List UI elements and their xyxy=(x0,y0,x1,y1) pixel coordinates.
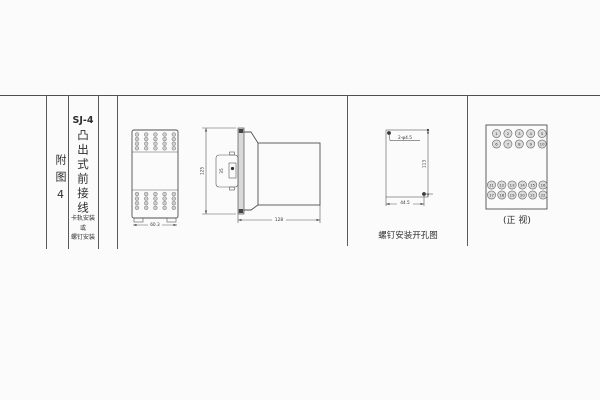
side-view-height-dim-text: 125 xyxy=(200,167,206,175)
mounting-note-line3: 螺钉安装 xyxy=(68,233,98,243)
terminal-dot xyxy=(172,137,176,141)
mounting-note-line2: 或 xyxy=(68,224,98,234)
side-view-bottom-terminal xyxy=(239,209,243,213)
terminal-number: 10 xyxy=(540,141,545,146)
terminal-dot xyxy=(163,142,167,146)
terminal-dot xyxy=(144,133,148,137)
terminal-panel-top-group: 12345678910 xyxy=(492,129,546,148)
terminal-number: 22 xyxy=(541,192,546,197)
terminal-dot xyxy=(154,206,158,210)
terminal-dot xyxy=(163,206,167,210)
drill-template-caption: 螺钉安装开孔图 xyxy=(364,229,452,241)
terminal-dot xyxy=(144,192,148,196)
front-view-width-dim-text: 60.3 xyxy=(150,222,160,228)
terminal-dot xyxy=(154,201,158,205)
terminal-panel-drawing: 12345678910 111213141516171819202122 xyxy=(482,120,552,212)
terminal-number: 16 xyxy=(541,182,546,187)
terminal-dot xyxy=(154,192,158,196)
terminal-dot xyxy=(135,137,139,141)
drill-horizontal-dim-text: 44.5 xyxy=(400,200,410,206)
drill-template-drawing: 2-φ4.5 113 44.5 xyxy=(376,124,444,212)
terminal-number: 17 xyxy=(489,192,494,197)
terminal-number: 14 xyxy=(520,182,525,187)
rail-clip-pin xyxy=(231,167,234,170)
terminal-dot xyxy=(172,197,176,201)
side-view-top-step xyxy=(244,132,258,143)
terminal-dot xyxy=(163,146,167,150)
terminal-dot xyxy=(172,192,176,196)
terminal-dot xyxy=(144,137,148,141)
front-view-right-foot xyxy=(167,218,176,222)
wiring-type-label: 凸出式前接线 xyxy=(75,129,91,216)
terminal-number: 11 xyxy=(489,182,494,187)
rail-clip-bottom-tab xyxy=(230,187,235,190)
terminal-dot xyxy=(135,142,139,146)
terminal-dot xyxy=(135,146,139,150)
terminal-dot xyxy=(135,197,139,201)
terminal-dot xyxy=(135,206,139,210)
side-view-top-terminal xyxy=(239,129,243,133)
terminal-dot xyxy=(163,197,167,201)
terminal-dot xyxy=(135,133,139,137)
front-view-width-dimension: 60.3 xyxy=(133,222,177,229)
terminal-dot xyxy=(172,133,176,137)
drill-vertical-dimension: 113 xyxy=(421,130,433,197)
frame-line-4 xyxy=(117,95,118,249)
terminal-number: 15 xyxy=(530,182,535,187)
terminal-dot xyxy=(154,133,158,137)
mounting-note: 卡轨安装 或 螺钉安装 xyxy=(68,214,98,243)
terminal-dot xyxy=(144,146,148,150)
terminal-dot xyxy=(154,137,158,141)
terminal-dot xyxy=(144,201,148,205)
side-view-depth-dim-text: 128 xyxy=(275,217,283,223)
frame-line-3 xyxy=(98,95,99,249)
terminal-dot xyxy=(172,142,176,146)
front-view-bottom-terminal-grid xyxy=(135,192,176,210)
appendix-label: 附图4 xyxy=(46,154,68,207)
terminal-dot xyxy=(154,142,158,146)
rail-clip-slot xyxy=(229,163,236,178)
terminal-dot xyxy=(172,206,176,210)
front-view-left-foot xyxy=(134,218,143,222)
side-view-height-dimension: 125 xyxy=(200,128,237,214)
drill-horizontal-dimension: 44.5 xyxy=(386,194,424,206)
terminal-dot xyxy=(172,201,176,205)
side-view-bottom-step xyxy=(244,205,258,210)
terminal-dot xyxy=(154,197,158,201)
terminal-dot xyxy=(163,201,167,205)
terminal-number: 18 xyxy=(499,192,504,197)
side-view-depth-dimension: 128 xyxy=(238,205,320,223)
front-view-drawing: 60.3 xyxy=(126,126,190,230)
mounting-note-line1: 卡轨安装 xyxy=(68,214,98,224)
terminal-dot xyxy=(144,197,148,201)
side-view-flange-plate xyxy=(238,128,244,214)
terminal-dot xyxy=(172,146,176,150)
terminal-dot xyxy=(163,133,167,137)
terminal-number: 13 xyxy=(510,182,515,187)
side-view-rail-clip: 35 xyxy=(216,152,238,190)
terminal-number: 19 xyxy=(510,192,515,197)
rail-clip-dim-text: 35 xyxy=(219,168,225,174)
drawing-sheet: 附图4 SJ-4 凸出式前接线 卡轨安装 或 螺钉安装 60.3 125 xyxy=(0,0,600,400)
terminal-panel-caption: (正 视) xyxy=(482,213,552,226)
side-view-drawing: 125 35 128 xyxy=(196,118,336,230)
drill-vertical-dim-text: 113 xyxy=(421,160,427,168)
terminal-panel-bottom-group: 111213141516171819202122 xyxy=(487,181,547,199)
model-label: SJ-4 xyxy=(68,115,98,126)
separator-2 xyxy=(467,95,468,246)
terminal-number: 21 xyxy=(530,192,535,197)
terminal-dot xyxy=(154,146,158,150)
terminal-number: 12 xyxy=(499,182,504,187)
terminal-dot xyxy=(144,206,148,210)
terminal-dot xyxy=(135,192,139,196)
front-view-top-terminal-grid xyxy=(135,133,176,151)
drill-holes-callout: 2-φ4.5 xyxy=(389,133,420,141)
terminal-dot xyxy=(163,192,167,196)
terminal-dot xyxy=(163,137,167,141)
terminal-number: 20 xyxy=(520,192,525,197)
rail-clip-top-tab xyxy=(230,152,235,155)
separator-1 xyxy=(347,95,348,246)
sheet-top-rule xyxy=(0,95,600,96)
terminal-dot xyxy=(135,201,139,205)
terminal-dot xyxy=(144,142,148,146)
side-view-case-body xyxy=(258,143,320,205)
